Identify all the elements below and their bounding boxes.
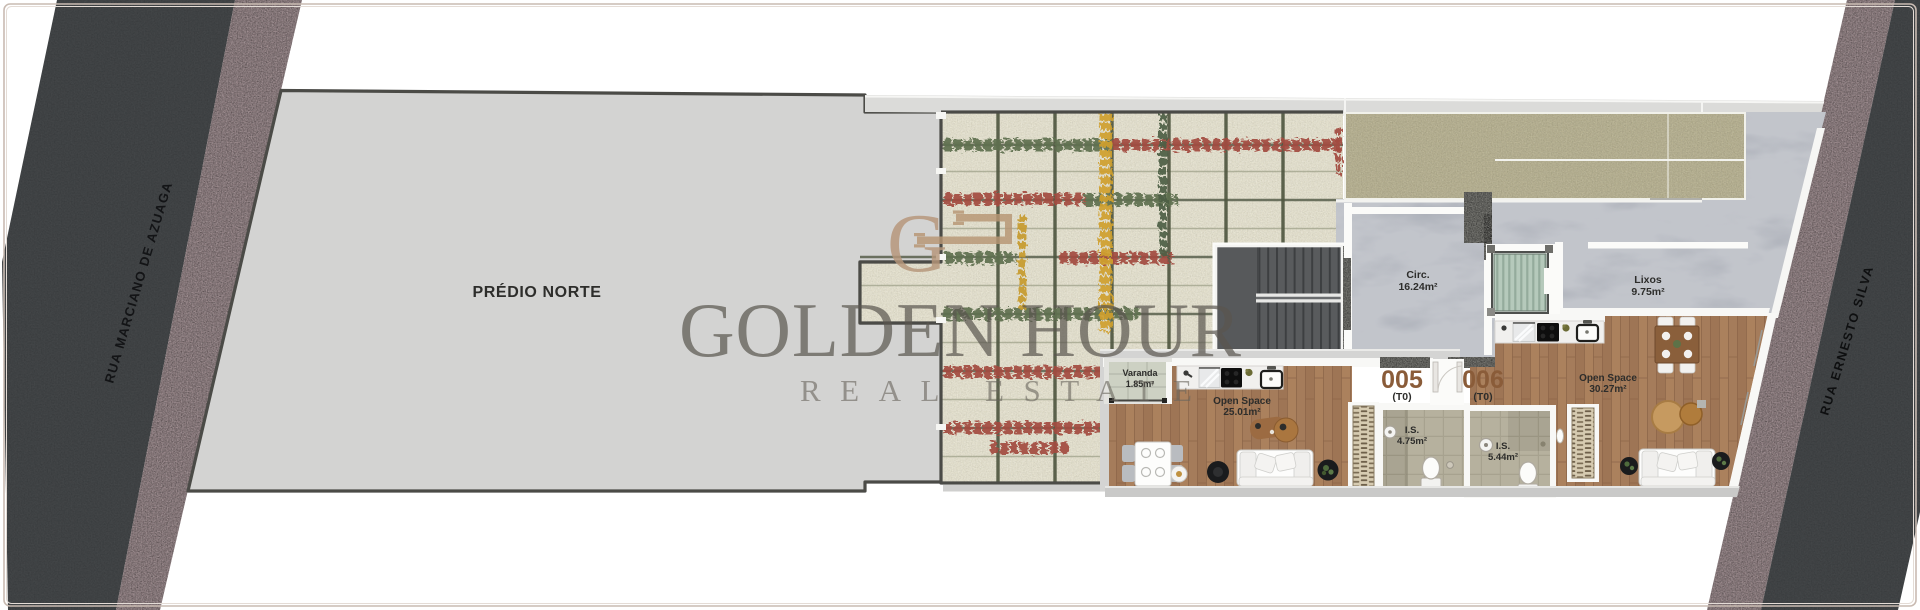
svg-text:(T0): (T0) [1473, 391, 1492, 403]
svg-text:I.S.: I.S. [1496, 441, 1510, 452]
svg-text:Open Space: Open Space [1579, 373, 1637, 384]
svg-text:006: 006 [1462, 366, 1504, 394]
svg-text:4.75m²: 4.75m² [1397, 436, 1427, 447]
svg-text:5.44m²: 5.44m² [1488, 452, 1518, 463]
svg-text:25.01m²: 25.01m² [1223, 407, 1261, 418]
svg-text:30.27m²: 30.27m² [1589, 384, 1627, 395]
svg-text:PRÉDIO NORTE: PRÉDIO NORTE [473, 282, 602, 301]
svg-text:Circ.: Circ. [1406, 269, 1429, 281]
svg-text:9.75m²: 9.75m² [1631, 286, 1665, 298]
svg-text:Open Space: Open Space [1213, 396, 1271, 407]
svg-text:16.24m²: 16.24m² [1398, 281, 1438, 293]
svg-text:I.S.: I.S. [1405, 425, 1419, 436]
svg-text:(T0): (T0) [1392, 391, 1411, 403]
svg-text:005: 005 [1381, 366, 1423, 394]
svg-text:Lixos: Lixos [1634, 274, 1662, 286]
svg-text:GOLDEN HOUR: GOLDEN HOUR [679, 287, 1242, 373]
svg-text:REAL ESTATE: REAL ESTATE [800, 373, 1212, 408]
